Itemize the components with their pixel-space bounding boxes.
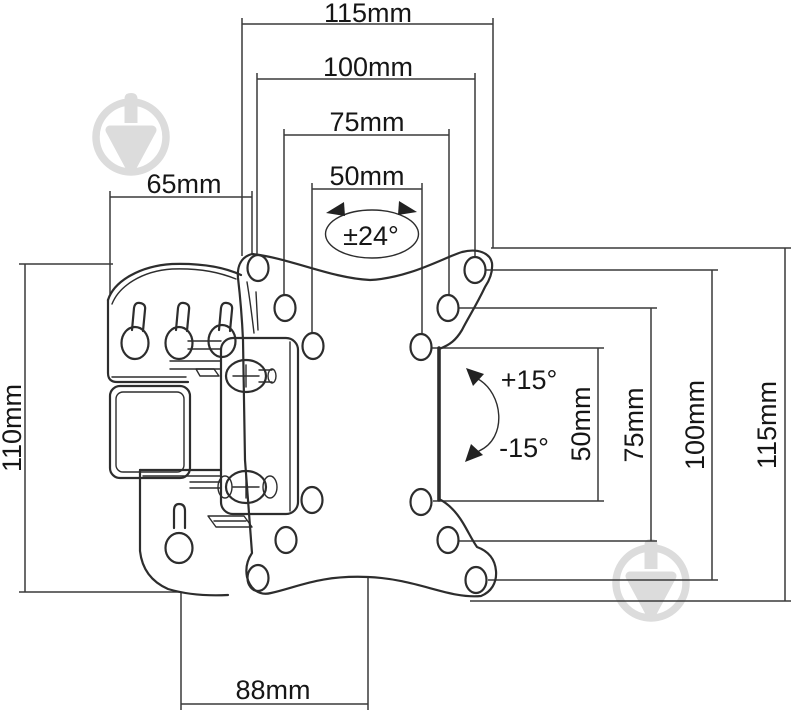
dim-label-right-115: 115mm <box>752 381 782 469</box>
mount-dimension-diagram: 115mm 100mm 75mm 50mm 65mm 110mm 88mm 50… <box>0 0 799 716</box>
dim-label-right-100: 100mm <box>680 380 710 470</box>
tilt-annotation <box>465 368 499 462</box>
vesa-holes <box>248 255 487 593</box>
knob-screw-top <box>226 360 276 392</box>
dim-65-top-left <box>110 191 252 294</box>
dim-label-88: 88mm <box>235 675 310 705</box>
dim-label-110: 110mm <box>0 384 27 472</box>
dim-label-top-50: 50mm <box>329 161 404 191</box>
swivel-arrow-right-icon <box>398 201 417 215</box>
swivel-arrow-left-icon <box>326 202 345 216</box>
dim-label-65: 65mm <box>146 169 221 199</box>
dim-label-top-75: 75mm <box>329 107 404 137</box>
keyhole-slot-bottom <box>166 504 193 563</box>
angle-label-swivel: ±24° <box>343 221 399 251</box>
keyhole-slot-2 <box>166 303 193 359</box>
tilt-arrow-down-icon <box>465 444 483 462</box>
diagram-canvas: 115mm 100mm 75mm 50mm 65mm 110mm 88mm 50… <box>0 0 799 716</box>
vesa-plate <box>238 251 496 597</box>
watermark-logo-top-left <box>96 93 166 172</box>
angle-label-tilt-up: +15° <box>501 365 558 395</box>
dim-110-left <box>19 264 181 592</box>
keyhole-slot-1 <box>122 303 149 359</box>
dim-label-right-50: 50mm <box>566 386 596 461</box>
wall-plate-recess-panel <box>110 386 190 478</box>
angle-label-tilt-down: -15° <box>499 433 549 463</box>
dim-label-top-115: 115mm <box>324 0 412 28</box>
wall-plate <box>108 264 258 595</box>
dim-label-top-100: 100mm <box>323 52 413 82</box>
dim-label-right-75: 75mm <box>619 387 649 462</box>
watermark-logo-bottom-right <box>616 539 686 618</box>
dim-75-top <box>284 129 449 296</box>
tilt-arrow-up-icon <box>466 368 484 386</box>
